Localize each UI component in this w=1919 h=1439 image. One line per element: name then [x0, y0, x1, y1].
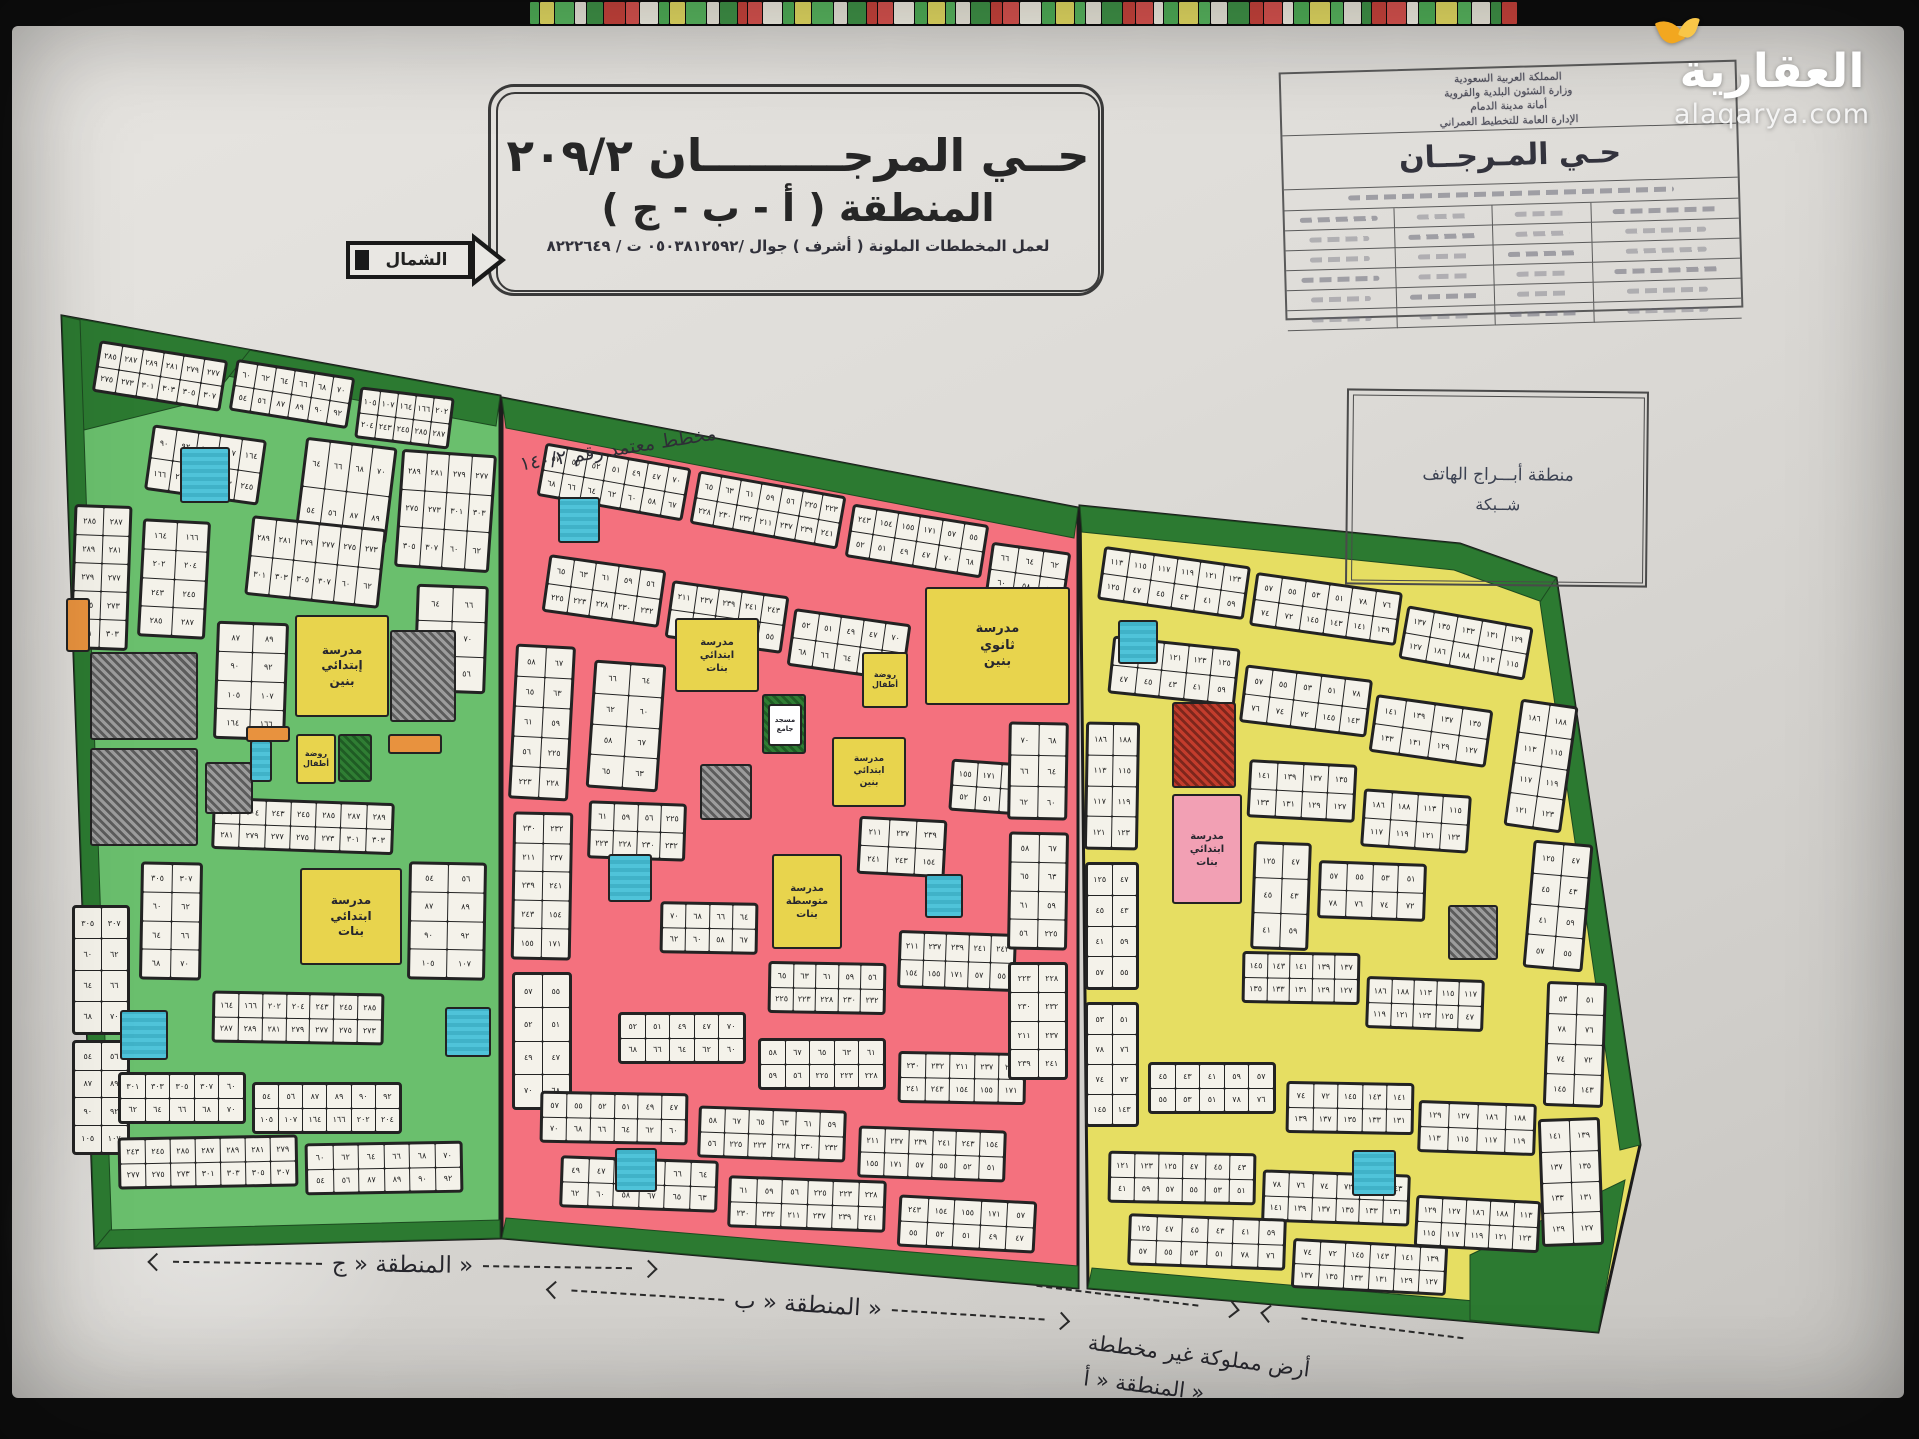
- plot-block: ١٨٦١٨٨١١٣١١٥١١٧١١٩١٢١١٢٣: [1360, 788, 1472, 853]
- plot-cell: ٤٩: [563, 1158, 588, 1181]
- plot-cell: ٥٤: [255, 1085, 278, 1108]
- plot-cell: ١٧١: [541, 929, 568, 957]
- plot-cell: ٣٠٧: [102, 908, 128, 938]
- plot-cell: ٣٠٧: [312, 563, 336, 601]
- plot-cell: ٢٨٧: [103, 508, 129, 536]
- plot-cell: ٢٤٣: [761, 596, 786, 624]
- plot-cell: ٦٣: [622, 757, 656, 789]
- plot-cell: ١١٥: [1417, 1221, 1441, 1245]
- plot-block: ١٢٩١٢٧١٨٦١٨٨١١٣١١٥١١٧١١٩: [1417, 1100, 1537, 1156]
- plot-cell: ٢٧٥: [338, 528, 362, 566]
- plot-cell: ٦٤: [75, 971, 101, 1001]
- plot-cell: ٢٣٧: [543, 844, 570, 872]
- utility-block: [1448, 905, 1498, 960]
- plot-cell: ٥٨: [1012, 835, 1039, 863]
- plot-cell: ٢٨٧: [429, 422, 449, 446]
- plot-cell: ١٦٤: [303, 1109, 326, 1132]
- plot-cell: ٢٢٨: [859, 1065, 883, 1088]
- plot-cell: ١٦٤: [145, 521, 177, 550]
- plot-block: ٦١٥٩٥٦٢٢٥٢٢٣٢٢٨٢٣٠٢٣٢: [587, 800, 687, 861]
- plot-cell: ٥٩: [1258, 1221, 1283, 1244]
- utility-block: [90, 748, 198, 846]
- plot-cell: ٥٥: [900, 1221, 927, 1245]
- plot-cell: ٥١: [1398, 866, 1424, 892]
- plot-block: ١٤١١٣٩١٣٧١٣٥١٣٣١٣١١٢٩١٢٧: [1538, 1117, 1604, 1247]
- plot-cell: ٥٨: [641, 488, 664, 515]
- plot-cell: ١٥٤: [874, 510, 899, 537]
- plot-cell: ٤١: [1184, 673, 1210, 701]
- plot-cell: ٢٣٧: [775, 512, 798, 539]
- plot-block: ٢١١٢٣٧٢٣٩٢٤١٢٤٣١٥٤١٥٥١٧١٥٧٥٥: [897, 930, 1017, 992]
- approval-grid-cell: [1287, 308, 1396, 331]
- plot-cell: ١٢٣: [1222, 566, 1248, 592]
- plot-cell: ٥٣: [1181, 1242, 1206, 1265]
- plot-cell: ١١٣: [1474, 646, 1501, 673]
- plot-cell: ١٣٥: [1570, 1151, 1599, 1182]
- plot-cell: ٦١: [796, 1112, 820, 1135]
- plot-cell: ٢٨١: [102, 536, 128, 564]
- plot-cell: ١٤٥: [1345, 1244, 1370, 1267]
- plot-cell: ١١٧: [1477, 1129, 1505, 1152]
- plot-cell: ١٣١: [1400, 728, 1431, 757]
- plot-cell: ١٥٤: [928, 1199, 955, 1223]
- plot-cell: ١٣١: [1383, 1200, 1407, 1223]
- plot-cell: ٧٤: [1267, 697, 1294, 725]
- facility-rawda-b: روضة أطفال: [862, 652, 908, 708]
- plot-cell: ٧٠: [719, 1015, 743, 1038]
- plot-cell: ٥٩: [1113, 927, 1137, 957]
- plot-cell: ٥٢: [591, 1095, 614, 1118]
- plot-cell: ٥٤: [232, 386, 253, 411]
- plot-cell: ٢٢٣: [820, 495, 843, 522]
- plot-cell: ٥٦: [1010, 919, 1037, 947]
- plot-cell: ٢٨٥: [171, 1139, 195, 1162]
- plot-cell: ١٨٨: [1392, 980, 1414, 1003]
- plot-cell: ٦٥: [589, 755, 623, 787]
- plot-cell: ٥٣: [1206, 1179, 1229, 1202]
- plot-cell: ٤٥: [1088, 896, 1112, 926]
- arrow-left-icon: [147, 1252, 165, 1270]
- plot-cell: ٥٥: [567, 1094, 590, 1117]
- plot-block: ٢٤٣٢٤٥٢٨٥٢٨٧٢٨٩٢٨١٢٧٩٢٧٧٢٧٥٢٧٣٣٠١٣٠٣٣٠٥٣…: [118, 1134, 299, 1189]
- plot-cell: ٢٢٥: [540, 738, 568, 768]
- plot-cell: ١٨٦: [1365, 792, 1391, 819]
- plot-cell: ٢٣٧: [885, 1129, 909, 1152]
- plot-block: ٤٥٤٣٤١٥٩٥٧٥٥٥٣٥١٧٨٧٦: [1148, 1062, 1276, 1114]
- plot-cell: ٢٢٨: [816, 988, 838, 1011]
- plot-cell: ٥٥: [1279, 579, 1305, 605]
- plot-cell: ٤٧: [1111, 665, 1137, 693]
- plot-cell: ٤٣: [1113, 896, 1137, 926]
- plot-cell: ١٣١: [1290, 978, 1312, 1001]
- plot-cell: ٦٤: [419, 587, 453, 621]
- plot-cell: ١٨٨: [1546, 706, 1575, 739]
- plot-cell: ٧٤: [1372, 892, 1398, 918]
- plot-cell: ٣٠٣: [269, 558, 293, 596]
- plot-cell: ١٤١: [1395, 1246, 1420, 1269]
- plot-cell: ٤٥: [1531, 874, 1560, 906]
- plot-cell: ٥٧: [1256, 575, 1282, 601]
- plot-cell: ٢٣٩: [1011, 1050, 1038, 1077]
- plot-cell: ٦٢: [465, 532, 489, 570]
- plot-cell: ١٠٧: [251, 682, 284, 710]
- plot-block: ٥٢٥١٤٩٤٧٧٠٦٨٦٦٦٤٦٢٦٠: [618, 1012, 746, 1064]
- plot-cell: ٢٠٢: [143, 550, 175, 579]
- plot-block: ٧٠٦٨٦٦٦٤٦٢٦٠٥٨٦٧: [660, 901, 759, 955]
- utility-block: [390, 630, 456, 722]
- plot-cell: ٩٠: [218, 652, 251, 680]
- plot-cell: ٦٣: [794, 964, 816, 987]
- plot-cell: ٢٨١: [262, 1018, 285, 1041]
- plot-cell: ٤٥: [1151, 1065, 1175, 1088]
- plot-cell: ٢٨٥: [316, 803, 341, 826]
- plot-cell: ١٢٧: [1327, 793, 1353, 820]
- plot-cell: ٢٤١: [542, 872, 569, 900]
- plot-cell: ٥٥: [1270, 671, 1297, 699]
- plot-cell: ٢٢٣: [748, 1134, 772, 1157]
- utility-block: [205, 762, 253, 814]
- plot-cell: ١١٥: [1448, 1128, 1476, 1151]
- plot-cell: ٣٠٧: [172, 865, 200, 893]
- plot-cell: ٥١: [979, 1156, 1003, 1179]
- plot-cell: ٧٠: [515, 1075, 542, 1107]
- plot-cell: ٤٧: [589, 1159, 614, 1182]
- plot-cell: ٥١: [1327, 585, 1353, 611]
- telephone-towers-box: منطقة أبـــراج الهاتف شــبكة: [1345, 388, 1649, 587]
- plot-cell: ١١٩: [1389, 820, 1415, 847]
- plot-cell: ٦٤: [835, 644, 860, 672]
- plot-cell: ٢٧٧: [202, 360, 225, 385]
- plot-cell: ٢١١: [754, 509, 777, 536]
- plot-cell: ٢٣٧: [1039, 1022, 1066, 1049]
- plot-block: ٢١١٢٣٧٢٣٩٢٤١٢٤٣١٥٤١٥٥١٧١٥٧٥٥٥٢٥١: [857, 1125, 1007, 1182]
- plot-cell: ٢٣٢: [819, 1136, 843, 1159]
- plot-cell: ٦٦: [1011, 756, 1038, 786]
- plot-cell: ٢١١: [901, 933, 923, 959]
- plot-cell: ٦٤: [629, 665, 663, 697]
- mosque-block: [615, 1148, 657, 1192]
- plot-cell: ٥٦: [638, 570, 663, 598]
- plot-cell: ٢٤٥: [393, 417, 413, 441]
- plot-cell: ٢٧٩: [75, 563, 101, 591]
- plot-cell: ١٤١: [1541, 1121, 1570, 1152]
- plot-cell: ٥٢: [794, 611, 819, 639]
- plot-cell: ٢٢٣: [590, 830, 613, 856]
- plot-cell: ٨٧: [303, 1085, 326, 1108]
- plot-block: ٢٢٣٢٢٨٢٣٠٢٣٢٢١١٢٣٧٢٣٩٢٤١: [1008, 962, 1068, 1080]
- plot-cell: ٩٠: [308, 398, 329, 423]
- plot-cell: ٢٧٣: [171, 1163, 195, 1186]
- plot-cell: ٤٥: [1135, 668, 1161, 696]
- mosque-block: [1118, 620, 1158, 664]
- plot-cell: ٧٤: [1289, 1084, 1313, 1107]
- plot-cell: ٢٣٩: [946, 935, 968, 961]
- plot-cell: ٦٢: [102, 939, 128, 969]
- plot-cell: ١٣٧: [1313, 1108, 1337, 1131]
- plot-cell: ٢٤٣: [925, 1078, 949, 1101]
- plot-cell: ٣٠٣: [221, 1162, 245, 1185]
- plot-cell: ٦٢: [600, 481, 623, 508]
- plot-cell: ٦٣: [571, 561, 596, 589]
- plot-cell: ٧٢: [1276, 603, 1302, 629]
- plot-cell: ٩٠: [75, 1098, 101, 1125]
- leaf-icon: [1641, 14, 1713, 48]
- plot-block: ١٢٥٤٧٤٥٤٣٤١٥٩٥٧٥٥: [1523, 840, 1594, 973]
- plot-cell: ٦٤: [146, 1099, 170, 1122]
- plot-cell: ٦٦: [991, 545, 1018, 572]
- plot-cell: ١٣٩: [1404, 701, 1435, 730]
- plot-cell: ٥٦: [861, 966, 883, 989]
- plot-cell: ٥٤: [75, 1043, 101, 1070]
- plot-cell: ٢١١: [861, 1129, 885, 1152]
- plot-cell: ٢٢٥: [771, 988, 793, 1011]
- plot-cell: ٥٥: [1553, 937, 1582, 969]
- plot-cell: ٧٢: [1320, 1242, 1345, 1265]
- plot-cell: ٦٠: [627, 696, 661, 728]
- plot-block: ٦٥٦٣٦١٥٩٥٦٢٢٥٢٢٣٢٢٨٢٣٠٢٣٢: [768, 961, 887, 1015]
- plot-cell: ١٢١: [1507, 793, 1536, 826]
- approval-grid-cell: [1492, 222, 1591, 245]
- plot-cell: ٤١: [1195, 587, 1221, 613]
- plot-cell: ٢٨٧: [341, 804, 366, 827]
- plot-cell: ١٢٩: [1428, 732, 1459, 761]
- plot-cell: ١١٥: [1127, 553, 1153, 579]
- plot-block: ٧٤٧٢١٤٥١٤٣١٤١١٣٩١٣٧١٣٥١٣٣١٣١: [1286, 1081, 1415, 1135]
- plot-cell: ١٣٣: [1344, 1266, 1369, 1289]
- plot-cell: ٢٢٨: [693, 498, 716, 525]
- plot-cell: ٦٠: [662, 1119, 685, 1142]
- plan-subtitle: المنطقة ( أ - ب - ج ): [601, 186, 994, 230]
- plot-cell: ١١٧: [1151, 556, 1177, 582]
- plot-cell: ١١٧: [1459, 982, 1481, 1005]
- plot-cell: ١٧١: [945, 961, 967, 987]
- plot-cell: ٥١: [1319, 677, 1346, 705]
- plot-cell: ١٣٩: [1288, 1197, 1312, 1220]
- plot-cell: ٢٨٧: [172, 608, 204, 637]
- plot-cell: ٧٦: [1113, 1035, 1137, 1064]
- plot-cell: ٣٠١: [121, 1075, 145, 1098]
- plot-cell: ٤٥: [1254, 878, 1281, 912]
- plot-cell: ٩٢: [327, 401, 348, 426]
- plot-cell: ٣٠٣: [467, 494, 491, 532]
- plot-cell: ١٦٦: [239, 994, 262, 1017]
- plot-cell: ٦٧: [1039, 835, 1066, 863]
- plot-cell: ١٥٤: [915, 848, 943, 875]
- plot-block: ٥٣٥١٧٨٧٦٧٤٧٢١٤٥١٤٣: [1085, 1002, 1139, 1127]
- plot-cell: ٤٣: [1559, 876, 1588, 908]
- plot-cell: ٧٤: [1252, 600, 1278, 626]
- plot-cell: ٧٦: [1258, 1244, 1283, 1267]
- plot-cell: ٩٢: [252, 653, 285, 681]
- plot-cell: ٤٣: [1171, 584, 1197, 610]
- plot-cell: ١٣٥: [1319, 1265, 1344, 1288]
- plot-cell: ٦٧: [661, 491, 684, 518]
- plot-cell: ٥١: [816, 615, 841, 643]
- plot-cell: ١٣١: [1387, 1109, 1411, 1132]
- mosque-block: [120, 1010, 168, 1060]
- plot-cell: ٢٤٣: [514, 900, 541, 928]
- north-arrow-head-icon: [472, 233, 506, 287]
- plot-cell: ١١٧: [1363, 818, 1389, 845]
- plot-cell: ٥٩: [1208, 675, 1234, 703]
- plot-cell: ٥٦: [279, 1085, 302, 1108]
- plot-cell: ٢٢٥: [724, 1133, 748, 1156]
- plot-cell: ٢٤١: [815, 520, 838, 547]
- plot-cell: ٢٣٠: [730, 1202, 755, 1225]
- plot-cell: ٧٦: [1249, 1089, 1273, 1112]
- plot-cell: ٢٣٢: [926, 1054, 950, 1077]
- telephone-box-line1: منطقة أبـــراج الهاتف: [1422, 464, 1574, 486]
- plot-cell: ٢٣٢: [861, 989, 883, 1012]
- plot-cell: ١١٥: [1113, 756, 1137, 786]
- plot-cell: ١٠٧: [279, 1109, 302, 1132]
- plot-cell: ٦٥: [549, 557, 574, 585]
- plot-cell: ١٢٧: [1456, 735, 1487, 764]
- plot-cell: ١٦٦: [327, 1109, 350, 1132]
- plot-block: ٦١٥٩٥٦٢٢٥٢٢٣٢٢٨٢٣٠٢٣٢٢١١٢٣٧٢٣٩٢٤١: [727, 1175, 887, 1232]
- plot-cell: ٢٤٥: [334, 996, 357, 1019]
- plot-cell: ٦٢: [121, 1099, 145, 1122]
- plot-cell: ٩٠: [152, 428, 177, 460]
- plot-cell: ٢٢٨: [858, 1183, 883, 1206]
- plot-cell: ١٤١: [1290, 955, 1312, 978]
- plot-cell: ٧٠: [1011, 725, 1038, 755]
- brand-name: العقارية: [1641, 48, 1903, 95]
- plot-block: ٣٠١٣٠٣٣٠٥٣٠٧٦٠٦٢٦٤٦٦٦٨٧٠: [118, 1072, 246, 1124]
- plot-cell: ٦٧: [786, 1041, 810, 1064]
- plot-cell: ١٢٧: [1335, 979, 1357, 1002]
- plot-cell: ٥٧: [1321, 863, 1347, 889]
- plot-cell: ٥٧: [1088, 957, 1112, 987]
- plot-block: ٥٤٥٦٨٧٨٩٩٠٩٢١٠٥١٠٧١٦٤١٦٦٢٠٢٢٠٤: [252, 1082, 402, 1134]
- plot-cell: ٥٩: [1556, 907, 1585, 939]
- plot-cell: ٤٧: [914, 542, 939, 569]
- plot-cell: ٢٨٧: [196, 1139, 220, 1162]
- plot-cell: ٨٧: [270, 392, 291, 417]
- plot-cell: ٥٦: [779, 488, 802, 515]
- plot-cell: ٢٧٥: [400, 490, 424, 528]
- plot-cell: ٦٦: [590, 1118, 613, 1141]
- plot-cell: ٢٤١: [739, 593, 764, 621]
- plot-cell: ٤٣: [1176, 1065, 1200, 1088]
- plot-cell: ١١٩: [1175, 559, 1201, 585]
- plot-cell: ١٢١: [1087, 817, 1111, 847]
- plot-cell: ٥٥: [932, 1155, 956, 1178]
- plot-cell: ٥٥: [1151, 1089, 1175, 1112]
- plot-cell: ٦٤: [143, 921, 171, 949]
- plot-cell: ٧٢: [1314, 1084, 1338, 1107]
- plot-cell: ١٠٥: [255, 1109, 278, 1132]
- plot-cell: ٥١: [870, 535, 895, 562]
- plot-cell: ٣٠٥: [291, 560, 315, 598]
- plot-cell: ٢٢٥: [661, 806, 684, 832]
- plot-cell: ٦٤: [670, 1039, 694, 1062]
- plot-cell: ٢٧٥: [146, 1163, 170, 1186]
- plot-cell: ٣٠١: [247, 556, 271, 594]
- plot-cell: ١٤٣: [1323, 610, 1349, 636]
- plot-cell: ٣٠١: [341, 828, 366, 851]
- plot-cell: ٥٥: [1347, 864, 1373, 890]
- plot-cell: ٢٢٨: [539, 768, 567, 798]
- plot-cell: ١١٧: [1511, 763, 1540, 796]
- plot-cell: ١٦٤: [396, 394, 416, 418]
- plot-cell: ١٣٩: [1289, 1107, 1313, 1130]
- plot-cell: ٢٣٩: [795, 516, 818, 543]
- plot-block: ٥٣٥١٧٨٧٦٧٤٧٢١٤٥١٤٣: [1543, 981, 1607, 1108]
- plot-cell: ٧٢: [1113, 1065, 1137, 1094]
- plot-cell: ٦١: [731, 1178, 756, 1201]
- plot-cell: ٢٨٥: [99, 344, 122, 369]
- plot-cell: ١٢٩: [1418, 1198, 1442, 1222]
- plot-cell: ١١٩: [1465, 1224, 1489, 1248]
- plot-cell: ٦٥: [1011, 863, 1038, 891]
- plot-cell: ١٠٧: [447, 950, 483, 978]
- plot-cell: ٦٦: [665, 1162, 690, 1185]
- approval-grid-cell: [1395, 285, 1494, 308]
- plot-cell: ١٢٣: [1533, 797, 1562, 830]
- plot-cell: ٨٩: [327, 1085, 350, 1108]
- plot-cell: ٤٧: [645, 464, 668, 491]
- plot-cell: ١٢٣: [1135, 1154, 1158, 1177]
- plot-cell: ٢٢٨: [772, 1135, 796, 1158]
- plot-cell: ٢٣٢: [756, 1203, 781, 1226]
- plot-cell: ٥٧: [968, 962, 990, 988]
- plot-block: ٥٨٦٧٦٥٦٣٦١٥٩٥٦٢٢٥٢٢٣٢٢٨٢٣٠٢٣٢: [697, 1105, 847, 1162]
- plot-cell: ٢٧٩: [271, 1137, 295, 1160]
- plot-cell: ١٢١: [1162, 644, 1188, 672]
- plot-block: ١٦٤١٦٦٢٠٢٢٠٤٢٤٣٢٤٥٢٨٥٢٨٧: [137, 518, 211, 639]
- plot-cell: ٥٩: [757, 1179, 782, 1202]
- plot-cell: ١٤١: [1251, 762, 1277, 789]
- plot-cell: ١٢٧: [1573, 1212, 1602, 1243]
- plot-cell: ٦٦: [452, 588, 486, 622]
- plot-cell: ١٠٥: [360, 390, 380, 414]
- plot-cell: ٥٧: [543, 1094, 566, 1117]
- plot-cell: ٤٧: [543, 1042, 570, 1074]
- plot-cell: ٦٦: [170, 1099, 194, 1122]
- plan-title: حــي المرجـــــــــان ٢٠٩/٢: [506, 129, 1089, 182]
- plot-cell: ٦٨: [566, 1118, 589, 1141]
- plot-cell: ٢٤١: [858, 1206, 883, 1229]
- plot-cell: ٢٨٥: [411, 420, 431, 444]
- plot-cell: ١١٥: [1437, 981, 1459, 1004]
- plot-cell: ٢٨٩: [76, 535, 102, 563]
- plot-block: ١٤٥١٤٣١٤١١٣٩١٣٧١٣٥١٣٣١٣١١٢٩١٢٧: [1242, 951, 1361, 1005]
- plot-cell: ٢٢٨: [1039, 965, 1066, 992]
- plot-cell: ٥٧: [939, 521, 964, 548]
- plot-cell: ٢٤١: [901, 1077, 925, 1100]
- plot-cell: ٩٢: [436, 1167, 461, 1190]
- plot-cell: ١٢٥: [1088, 865, 1112, 895]
- facility-sch-b-banat: مدرسة ابتدائي بنات: [675, 618, 759, 692]
- plot-cell: ٤٧: [1113, 865, 1137, 895]
- plot-cell: ٦١: [591, 803, 614, 829]
- plot-cell: ١٠٧: [378, 392, 398, 416]
- plot-cell: ٢٣٧: [694, 587, 719, 615]
- plot-cell: ٢٣٧: [924, 934, 946, 960]
- plot-cell: ٣٠٧: [271, 1161, 295, 1184]
- plot-cell: ٧٦: [1576, 1015, 1603, 1045]
- plot-cell: ٢٨٩: [402, 452, 426, 490]
- plot-cell: ٦٠: [236, 362, 257, 387]
- plot-cell: ٧٨: [1088, 1035, 1112, 1064]
- plot-cell: ٦٤: [733, 905, 756, 928]
- plot-cell: ٥٧: [1249, 1065, 1273, 1088]
- plot-cell: ١٣٥: [1245, 978, 1267, 1001]
- plot-block: ٢٨٩٢٨١٢٧٩٢٧٧٢٧٥٢٧٣٣٠١٣٠٣٣٠٥٣٠٧٦٠٦٢: [244, 515, 387, 609]
- plot-cell: ٦١: [1011, 891, 1038, 919]
- plot-cell: ٢١١: [950, 1055, 974, 1078]
